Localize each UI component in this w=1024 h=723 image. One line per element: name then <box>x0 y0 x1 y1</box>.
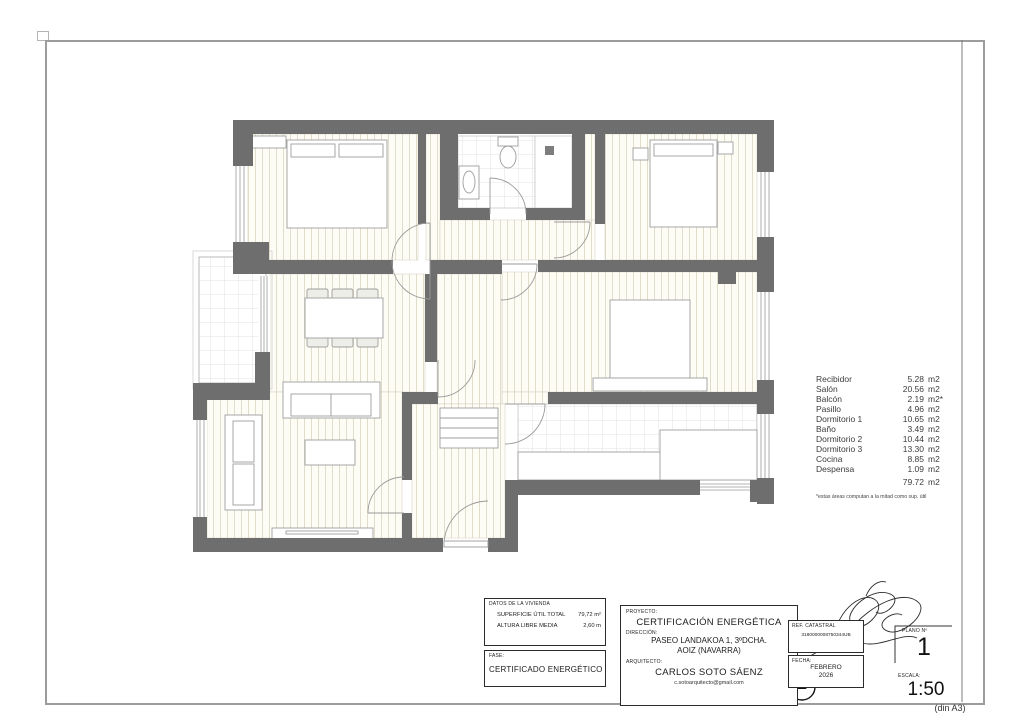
shower-drain <box>545 146 554 155</box>
sofa-cushion <box>331 394 371 416</box>
arquitecto-label: ARQUITECTO: <box>626 659 792 665</box>
sofa-cushion <box>291 394 331 416</box>
window <box>758 414 773 478</box>
altura-value: 2,60 m <box>583 623 601 629</box>
fecha-year: 2026 <box>792 672 860 680</box>
drawing-sheet: Recibidor5.28m2 Salón20.56m2 Balcón2.19m… <box>0 0 1024 723</box>
nightstand <box>633 148 648 160</box>
chair <box>357 337 378 347</box>
area-row: Balcón2.19m2* <box>816 394 954 404</box>
coffee-table <box>305 440 355 465</box>
window <box>758 172 773 237</box>
arquitecto-name: CARLOS SOTO SÁENZ <box>626 667 792 678</box>
chair <box>332 337 353 347</box>
superficie-label: SUPERFICIE ÚTIL TOTAL <box>497 612 565 618</box>
fase-value: CERTIFICADO ENERGÉTICO <box>489 665 601 674</box>
window <box>700 481 750 494</box>
proyecto-box: PROYECTO: CERTIFICACIÓN ENERGÉTICA DIREC… <box>620 605 798 706</box>
pillow <box>291 144 335 157</box>
plano-number: 1 <box>896 634 952 660</box>
direccion-line1: PASEO LANDAKOA 1, 3ºDCHA. <box>626 636 792 646</box>
area-row: Despensa1.09m2 <box>816 464 954 474</box>
area-row: Recibidor5.28m2 <box>816 374 954 384</box>
area-row: Dormitorio 110.65m2 <box>816 414 954 424</box>
ref-catastral-box: REF. CATASTRAL 3180000008750344UB <box>788 620 864 653</box>
area-row: Dormitorio 210.44m2 <box>816 434 954 444</box>
direccion-line2: AOIZ (NAVARRA) <box>626 646 792 656</box>
sofa-cushion <box>233 421 254 462</box>
window <box>194 420 207 517</box>
fase-label: FASE: <box>489 653 601 659</box>
area-row: Pasillo4.96m2 <box>816 404 954 414</box>
escala-value: 1:50 <box>895 679 957 700</box>
fecha-month: FEBRERO <box>792 664 860 672</box>
datos-label: DATOS DE LA VIVIENDA <box>489 601 601 607</box>
area-total-row: 79.72m2 <box>816 477 954 487</box>
hall-north-strip <box>426 134 440 260</box>
kitchen-counter-right <box>660 430 757 480</box>
room-pasillo <box>440 220 595 260</box>
arquitecto-email: c.sotoarquitecto@gmail.com <box>626 680 792 686</box>
area-row: Salón20.56m2 <box>816 384 954 394</box>
pillow <box>339 144 383 157</box>
toilet-tank <box>498 137 518 146</box>
sofa-cushion <box>233 464 254 505</box>
chair <box>357 289 378 299</box>
datos-vivienda-box: DATOS DE LA VIVIENDA SUPERFICIE ÚTIL TOT… <box>484 598 606 646</box>
din-format-note: (din A3) <box>918 703 982 713</box>
proyecto-label: PROYECTO: <box>626 609 792 615</box>
nightstand <box>718 142 733 154</box>
chair <box>332 289 353 299</box>
shelf <box>252 136 286 148</box>
toilet-bowl <box>500 146 516 168</box>
tv <box>286 531 358 534</box>
escala-block: ESCALA: 1:50 <box>895 673 957 700</box>
sink-basin <box>463 171 475 193</box>
window <box>233 166 247 242</box>
chair <box>307 289 328 299</box>
area-footnote: *estas áreas computan a la mitad como su… <box>816 494 954 500</box>
area-row: Baño3.49m2 <box>816 424 954 434</box>
balcony-door-window <box>258 276 270 352</box>
window <box>758 292 773 380</box>
area-row: Dormitorio 313.30m2 <box>816 444 954 454</box>
chair <box>307 337 328 347</box>
area-row: Cocina8.85m2 <box>816 454 954 464</box>
area-schedule: Recibidor5.28m2 Salón20.56m2 Balcón2.19m… <box>816 374 954 500</box>
fecha-box: FECHA: FEBRERO 2026 <box>788 655 864 688</box>
plano-number-block: PLANO Nº 1 <box>896 628 952 660</box>
ref-catastral-label: REF. CATASTRAL <box>792 623 860 629</box>
ref-catastral-value: 3180000008750344UB <box>792 633 860 638</box>
pillow <box>654 144 713 156</box>
proyecto-title: CERTIFICACIÓN ENERGÉTICA <box>626 617 792 628</box>
superficie-value: 79,72 m² <box>578 612 601 618</box>
hall-south-strip <box>437 274 502 404</box>
bed-bench <box>593 378 707 391</box>
dining-table <box>305 298 383 338</box>
fase-box: FASE: CERTIFICADO ENERGÉTICO <box>484 650 606 687</box>
bed-dorm3 <box>610 300 690 378</box>
altura-label: ALTURA LIBRE MEDIA <box>497 623 557 629</box>
